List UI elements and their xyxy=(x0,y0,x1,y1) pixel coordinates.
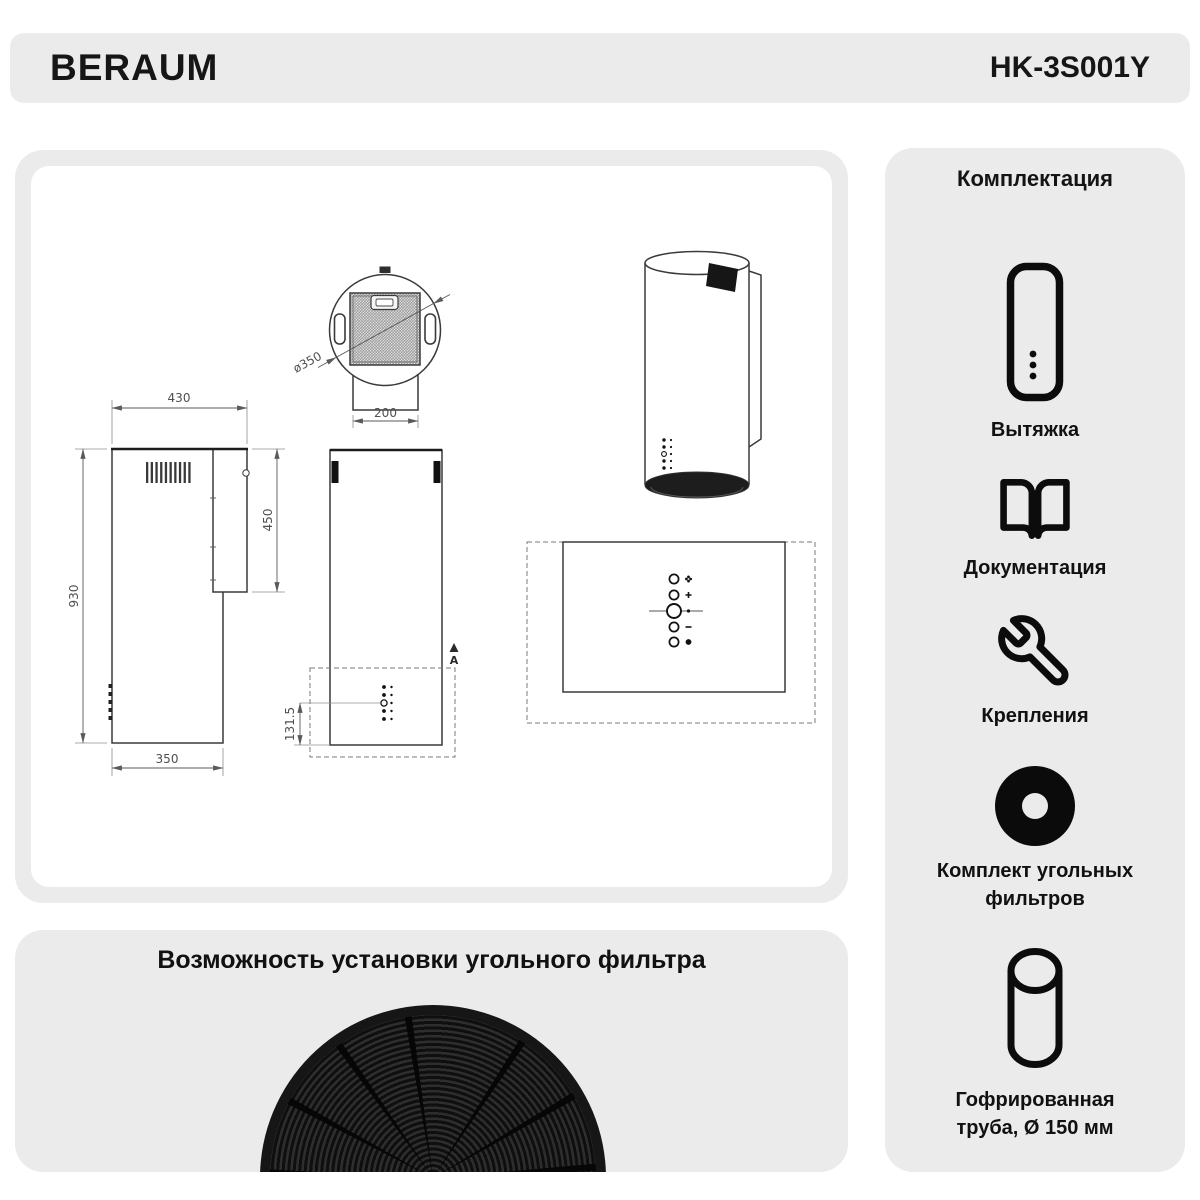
package-item-filters: Комплект угольных фильтров xyxy=(885,765,1185,913)
control-panel-buttons xyxy=(667,574,692,646)
model-number: HK-3S001Y xyxy=(990,51,1150,85)
brand-logo: BERAUM xyxy=(50,47,218,89)
header-bar: BERAUM HK-3S001Y xyxy=(10,33,1190,103)
view-detail-a xyxy=(527,542,815,723)
package-item-label: Вытяжка xyxy=(991,416,1079,444)
package-item-label: Гофрированная труба, Ø 150 мм xyxy=(938,1086,1133,1142)
dim-width-top: 430 xyxy=(168,391,191,405)
duct-pipe-icon xyxy=(1007,948,1063,1072)
dim-height: 930 xyxy=(67,585,81,608)
fan-glyph xyxy=(685,576,692,583)
view-front: A 131.5 xyxy=(283,450,459,757)
dim-duct-width: 200 xyxy=(374,406,397,420)
view-bottom: ø350 200 xyxy=(291,267,450,429)
hood-icon xyxy=(1006,262,1064,402)
dim-controls-offset: 131.5 xyxy=(283,707,297,741)
book-icon xyxy=(996,476,1074,542)
section-marker: A xyxy=(450,654,459,667)
carbon-filter-card: Возможность установки угольного фильтра xyxy=(15,930,848,1172)
dim-width-bottom: 350 xyxy=(156,752,179,766)
dot-glyph xyxy=(687,609,690,612)
light-glyph xyxy=(686,639,692,645)
package-title: Комплектация xyxy=(885,166,1185,192)
vent-grille xyxy=(146,462,191,483)
package-item-mount: Крепления xyxy=(885,612,1185,730)
carbon-filter-icon xyxy=(994,765,1076,847)
view-3d xyxy=(645,252,761,499)
view-side: 430 930 450 350 xyxy=(67,391,285,776)
wrench-icon xyxy=(995,612,1075,692)
plus-glyph xyxy=(686,592,692,598)
package-item-label: Комплект угольных фильтров xyxy=(910,857,1160,913)
package-item-docs: Документация xyxy=(885,476,1185,582)
package-item-label: Документация xyxy=(964,554,1107,582)
product-infographic: BERAUM HK-3S001Y 430 930 xyxy=(0,0,1200,1200)
front-buttons-mini xyxy=(381,685,393,721)
carbon-filter-title: Возможность установки угольного фильтра xyxy=(15,946,848,975)
package-item-hood: Вытяжка xyxy=(885,262,1185,444)
hood-3d-buttons xyxy=(662,438,673,469)
dim-diameter: ø350 xyxy=(291,349,324,376)
dim-duct-height: 450 xyxy=(261,509,275,532)
carbon-filter-photo xyxy=(260,1005,606,1172)
package-item-label: Крепления xyxy=(981,702,1088,730)
package-item-pipe: Гофрированная труба, Ø 150 мм xyxy=(885,948,1185,1142)
technical-drawing: 430 930 450 350 xyxy=(15,150,848,903)
